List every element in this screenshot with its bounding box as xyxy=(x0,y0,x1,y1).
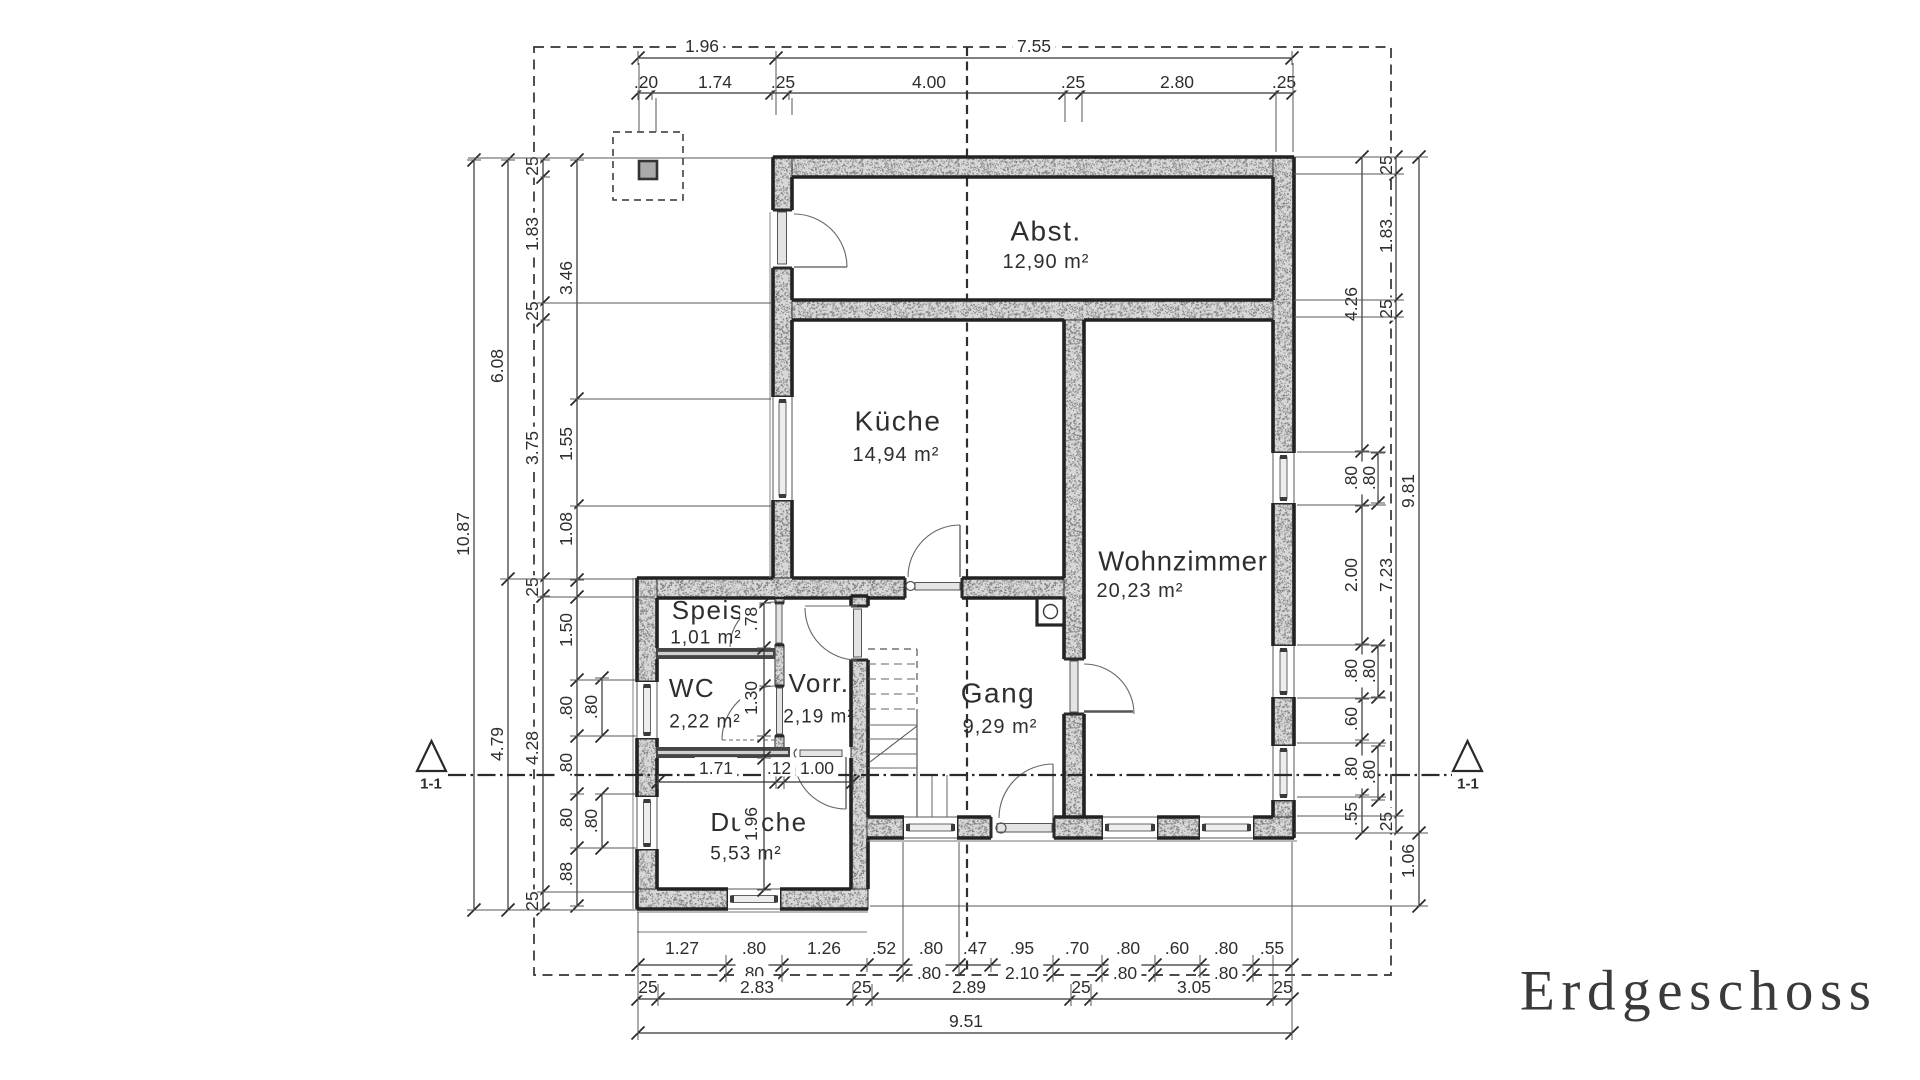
svg-text:.80: .80 xyxy=(917,963,942,983)
svg-text:.80: .80 xyxy=(1341,757,1361,782)
svg-text:1,01 m²: 1,01 m² xyxy=(670,628,741,649)
svg-text:7.23: 7.23 xyxy=(1376,558,1396,592)
svg-text:25: 25 xyxy=(522,891,542,910)
svg-text:.20: .20 xyxy=(634,72,659,92)
svg-text:1.00: 1.00 xyxy=(800,758,834,778)
svg-text:1.26: 1.26 xyxy=(807,938,841,958)
svg-text:1.96: 1.96 xyxy=(685,36,719,56)
svg-text:.60: .60 xyxy=(1165,938,1190,958)
svg-text:2.10: 2.10 xyxy=(1005,963,1039,983)
svg-text:.70: .70 xyxy=(1065,938,1090,958)
svg-text:1.08: 1.08 xyxy=(556,512,576,546)
svg-text:25: 25 xyxy=(1376,299,1396,318)
svg-text:12,90 m²: 12,90 m² xyxy=(1003,251,1090,273)
svg-text:Wohnzimmer: Wohnzimmer xyxy=(1098,546,1267,577)
svg-text:.80: .80 xyxy=(1116,938,1141,958)
svg-text:2,19 m²: 2,19 m² xyxy=(783,707,854,728)
svg-text:9.51: 9.51 xyxy=(949,1011,983,1031)
svg-text:Speis: Speis xyxy=(672,595,745,625)
svg-text:7.55: 7.55 xyxy=(1017,36,1051,56)
svg-text:.55: .55 xyxy=(1260,938,1284,958)
svg-text:14,94 m²: 14,94 m² xyxy=(853,444,940,466)
svg-text:4.00: 4.00 xyxy=(912,72,946,92)
svg-text:.80: .80 xyxy=(1359,466,1379,491)
svg-text:.80: .80 xyxy=(742,938,767,958)
svg-text:1.06: 1.06 xyxy=(1398,844,1418,878)
svg-text:1.55: 1.55 xyxy=(556,427,576,461)
svg-text:25: 25 xyxy=(522,156,542,175)
svg-text:25: 25 xyxy=(522,301,542,320)
svg-text:Abst.: Abst. xyxy=(1010,216,1081,247)
svg-text:Gang: Gang xyxy=(961,678,1036,709)
svg-text:4.26: 4.26 xyxy=(1341,287,1361,321)
svg-text:2.89: 2.89 xyxy=(952,977,986,997)
svg-text:3.05: 3.05 xyxy=(1177,977,1211,997)
svg-text:4.79: 4.79 xyxy=(487,727,507,761)
svg-text:1.50: 1.50 xyxy=(556,613,576,647)
svg-text:.52: .52 xyxy=(872,938,896,958)
svg-text:2.80: 2.80 xyxy=(1160,72,1194,92)
svg-text:10.87: 10.87 xyxy=(453,512,473,556)
svg-text:WC: WC xyxy=(669,673,715,703)
svg-text:.80: .80 xyxy=(1359,659,1379,684)
svg-text:2,22 m²: 2,22 m² xyxy=(669,712,740,733)
svg-text:25: 25 xyxy=(638,977,657,997)
svg-text:Erdgeschoss: Erdgeschoss xyxy=(1520,960,1878,1023)
svg-text:Küche: Küche xyxy=(855,406,942,437)
svg-text:.78: .78 xyxy=(741,607,761,631)
svg-text:.80: .80 xyxy=(1359,760,1379,785)
svg-text:2.83: 2.83 xyxy=(740,977,774,997)
svg-text:.80: .80 xyxy=(1341,466,1361,491)
svg-text:2.00: 2.00 xyxy=(1341,558,1361,592)
svg-text:1.83: 1.83 xyxy=(1376,219,1396,253)
svg-text:25: 25 xyxy=(1071,977,1090,997)
svg-text:.47: .47 xyxy=(963,938,987,958)
svg-text:.80: .80 xyxy=(556,696,576,721)
svg-text:.80: .80 xyxy=(1214,938,1239,958)
svg-text:.60: .60 xyxy=(1341,707,1361,732)
svg-text:20,23 m²: 20,23 m² xyxy=(1097,580,1184,602)
svg-text:.80: .80 xyxy=(581,809,601,834)
svg-text:9,29 m²: 9,29 m² xyxy=(963,716,1038,738)
svg-text:1.96: 1.96 xyxy=(741,807,761,841)
svg-text:1.74: 1.74 xyxy=(698,72,732,92)
svg-text:25: 25 xyxy=(522,577,542,596)
svg-text:.80: .80 xyxy=(1341,659,1361,684)
svg-text:.80: .80 xyxy=(919,938,944,958)
svg-text:1.83: 1.83 xyxy=(522,217,542,251)
svg-text:.80: .80 xyxy=(1113,963,1138,983)
svg-text:3.75: 3.75 xyxy=(522,431,542,465)
svg-text:1.30: 1.30 xyxy=(741,681,761,715)
svg-text:3.46: 3.46 xyxy=(556,261,576,295)
svg-text:25: 25 xyxy=(852,977,871,997)
svg-text:.80: .80 xyxy=(556,753,576,778)
svg-text:4.28: 4.28 xyxy=(522,731,542,765)
svg-text:.25: .25 xyxy=(771,72,795,92)
svg-text:.80: .80 xyxy=(556,808,576,833)
svg-text:1-1: 1-1 xyxy=(420,776,442,793)
svg-text:1.27: 1.27 xyxy=(665,938,699,958)
svg-text:.25: .25 xyxy=(1061,72,1085,92)
svg-text:.12: .12 xyxy=(767,758,791,778)
svg-text:.80: .80 xyxy=(1214,963,1239,983)
svg-text:1.71: 1.71 xyxy=(699,758,733,778)
svg-text:6.08: 6.08 xyxy=(487,349,507,383)
svg-text:25: 25 xyxy=(1376,155,1396,174)
svg-text:.95: .95 xyxy=(1010,938,1034,958)
svg-text:5,53 m²: 5,53 m² xyxy=(710,844,781,865)
svg-text:25: 25 xyxy=(1273,977,1292,997)
svg-text:.55: .55 xyxy=(1341,802,1361,826)
svg-text:.80: .80 xyxy=(581,695,601,720)
svg-text:9.81: 9.81 xyxy=(1398,474,1418,508)
svg-text:1-1: 1-1 xyxy=(1457,776,1479,793)
svg-text:Vorr.: Vorr. xyxy=(789,668,850,698)
svg-text:.88: .88 xyxy=(556,862,576,886)
